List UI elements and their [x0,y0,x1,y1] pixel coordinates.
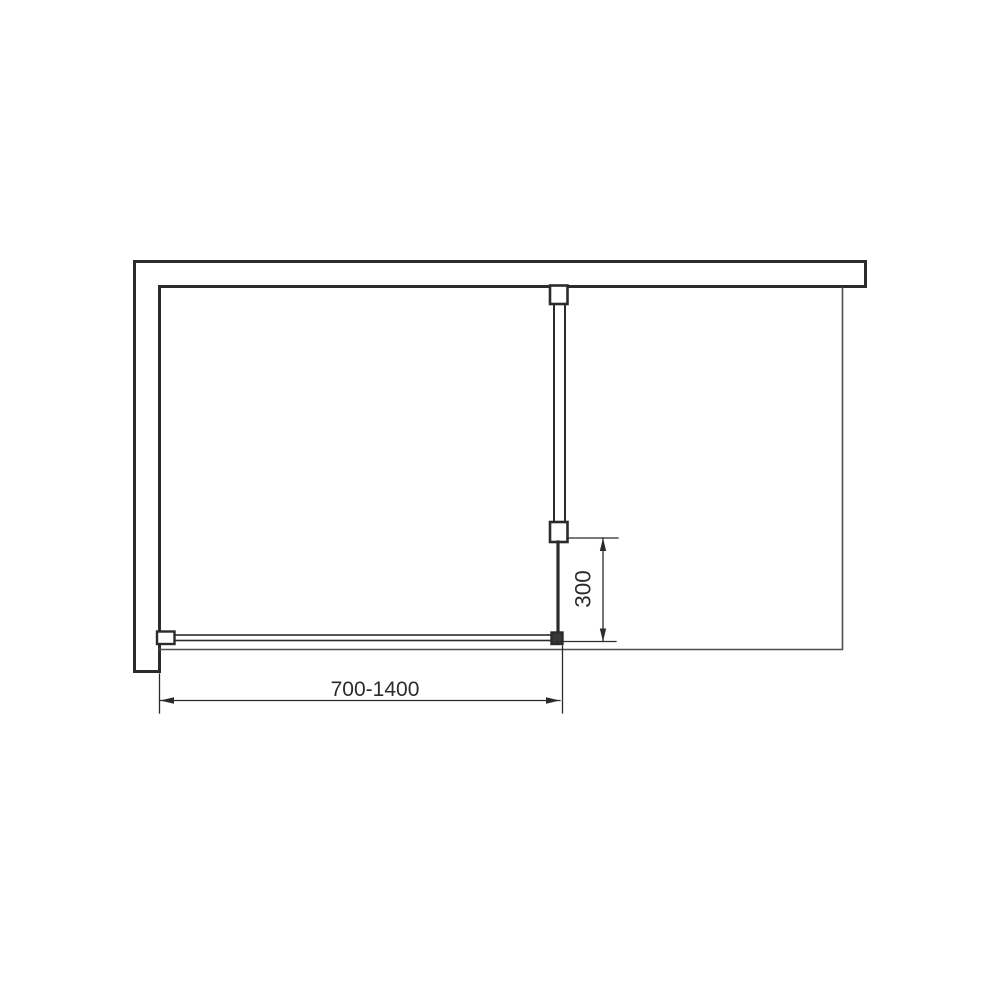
glass-panel [174,635,552,641]
drawing-group [135,262,866,714]
support-bar-wall-mount [550,286,568,305]
shower-plan-diagram: 300 700-1400 [0,0,1000,1000]
width-dim-arrow-left [160,697,174,703]
depth-dim-arrow-up [600,538,606,551]
panel-end-clamp [552,633,563,645]
technical-drawing-page: 300 700-1400 [0,0,1000,1000]
width-dimension-label: 700-1400 [331,678,420,701]
depth-dimension-label: 300 [571,570,596,608]
wall-profile-bracket [157,632,175,645]
width-dim-arrow-right [546,697,560,703]
support-bar [554,302,565,523]
wall-outline [135,262,866,672]
depth-dim-arrow-down [600,629,606,642]
shower-tray-outline [160,288,843,650]
support-bar-connector [550,522,568,542]
